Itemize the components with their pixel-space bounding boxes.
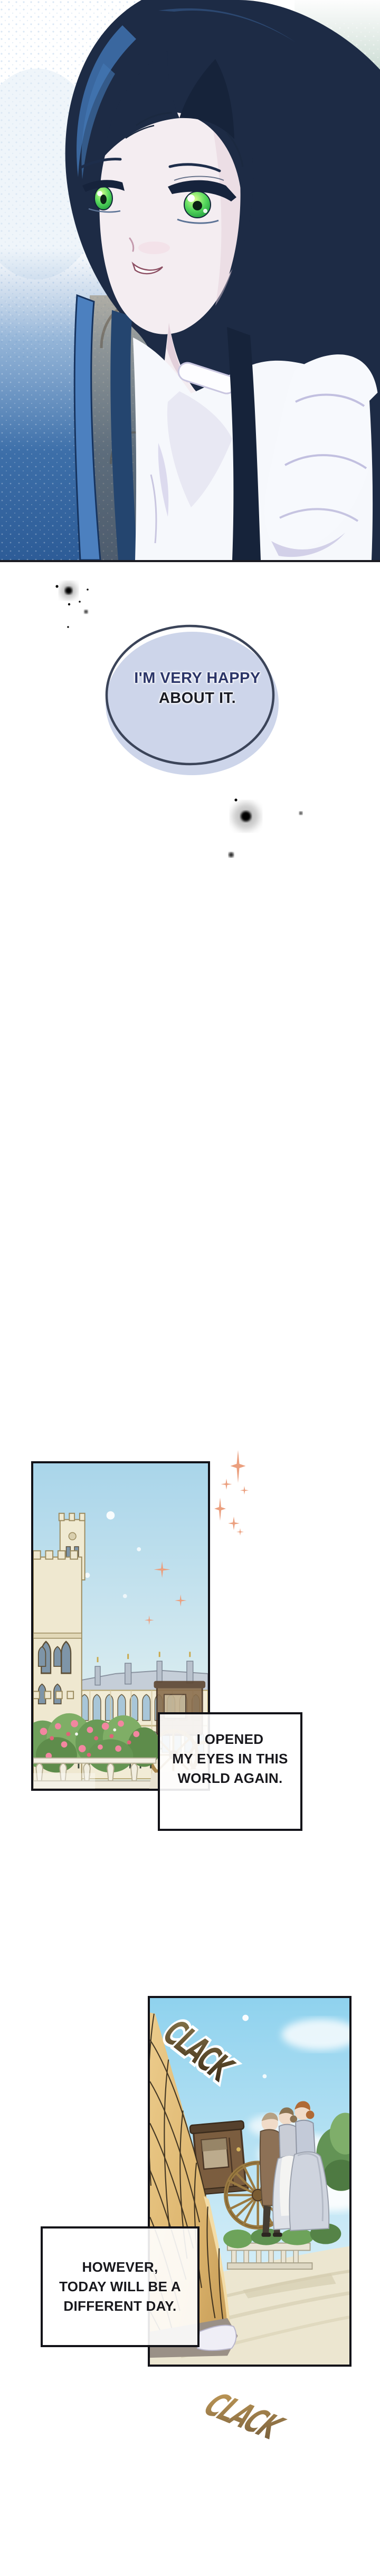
sfx-clack-bottom: CLACK (194, 2367, 305, 2462)
speech-bubble-text: I'M VERY HAPPY ABOUT IT. (118, 669, 277, 708)
narration-box-1: I OPENED MY EYES IN THIS WORLD AGAIN. (158, 1712, 302, 1831)
panel-portrait (0, 0, 380, 562)
portrait-art (0, 0, 380, 560)
speech-bubble: I'M VERY HAPPY ABOUT IT. (103, 622, 291, 780)
sfx-clack-top: CLACK (152, 2004, 247, 2120)
narration-line: WORLD AGAIN. (177, 1769, 282, 1788)
black-sparkle-cluster (42, 577, 106, 635)
narration-line: MY EYES IN THIS (172, 1749, 288, 1769)
sfx-clack-top-text: CLACK (156, 2012, 242, 2091)
speech-line: ABOUT IT. (118, 689, 277, 709)
webtoon-page: I'M VERY HAPPY ABOUT IT. (0, 0, 380, 2576)
sfx-clack-bottom-text: CLACK (196, 2386, 292, 2447)
narration-line: TODAY WILL BE A (59, 2277, 181, 2297)
narration-box-2: HOWEVER, TODAY WILL BE A DIFFERENT DAY. (41, 2226, 199, 2347)
soft-star-sparkles (216, 786, 311, 865)
narration-line: I OPENED (197, 1730, 264, 1749)
salmon-sparkle-cluster (214, 1449, 264, 1536)
speech-line: I'M VERY HAPPY (118, 669, 277, 689)
narration-line: DIFFERENT DAY. (63, 2297, 176, 2316)
narration-line: HOWEVER, (82, 2257, 158, 2277)
